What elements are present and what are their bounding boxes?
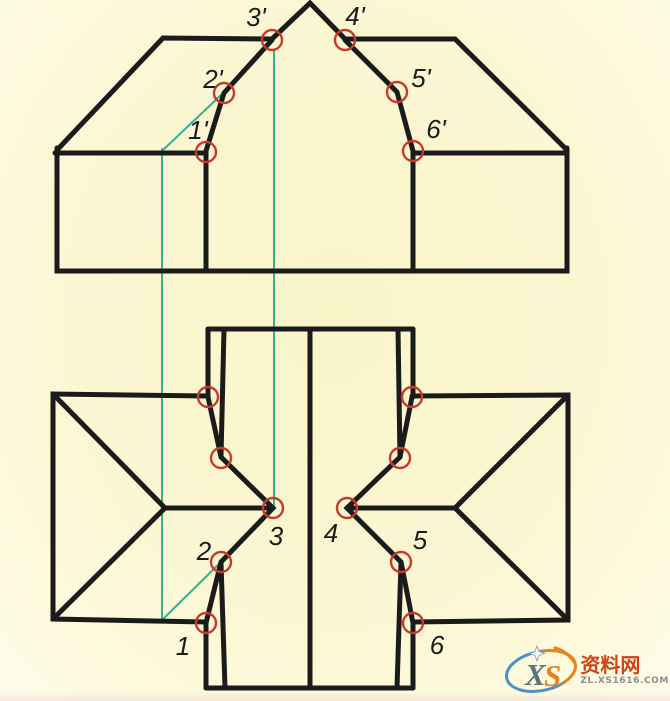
top-outline-segment bbox=[221, 563, 225, 688]
point-label: 3' bbox=[246, 2, 266, 32]
top-view-lines bbox=[53, 329, 568, 688]
front-outline-segment bbox=[57, 148, 567, 271]
watermark-logo: X S bbox=[503, 644, 579, 697]
front-outline-segment bbox=[345, 40, 413, 151]
construction-lines bbox=[162, 50, 274, 620]
point-label: 4 bbox=[324, 518, 338, 548]
front-outline-segment bbox=[57, 3, 567, 150]
point-label: 1 bbox=[176, 631, 190, 661]
point-label: 5 bbox=[413, 525, 428, 555]
front-outline-segment bbox=[206, 40, 272, 151]
point-label: 4' bbox=[345, 1, 365, 31]
top-outline-segment bbox=[397, 563, 401, 688]
watermark-brand: 资料网 bbox=[580, 655, 669, 675]
watermark-domain: ZL.XS1616.COM bbox=[580, 677, 669, 686]
point-label: 1' bbox=[188, 115, 208, 145]
projection-drawing: 1'2'3'4'5'6'321456 bbox=[0, 0, 670, 701]
top-outline-segment bbox=[455, 395, 568, 620]
point-label: 5' bbox=[411, 63, 431, 93]
front-view-lines bbox=[55, 3, 567, 271]
top-outline-segment bbox=[53, 394, 165, 619]
top-outline-segment bbox=[398, 329, 400, 457]
drawing-canvas: 1'2'3'4'5'6'321456 X S 资料网 ZL.XS1616.CO bbox=[0, 0, 670, 701]
point-label: 6 bbox=[430, 630, 445, 660]
point-label: 2' bbox=[202, 64, 223, 94]
point-label: 2 bbox=[196, 536, 212, 566]
point-label: 3 bbox=[269, 521, 284, 551]
logo-letter-s: S bbox=[544, 658, 561, 693]
point-label: 6' bbox=[426, 114, 446, 144]
top-outline-segment bbox=[221, 329, 224, 457]
watermark: X S 资料网 ZL.XS1616.COM bbox=[503, 644, 669, 697]
